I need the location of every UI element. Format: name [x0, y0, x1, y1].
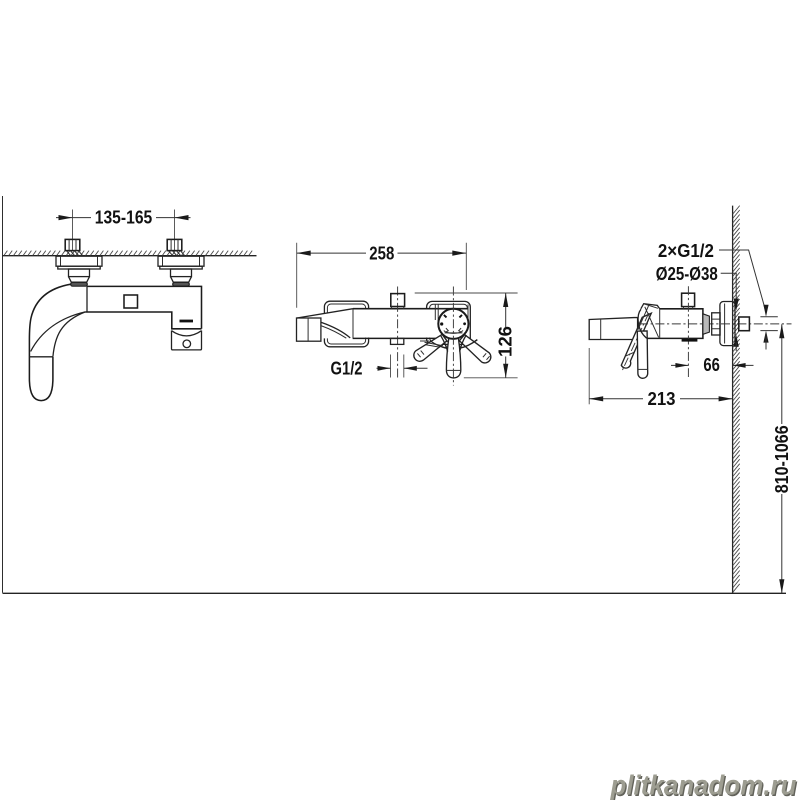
svg-text:135-165: 135-165 — [95, 207, 153, 228]
svg-text:258: 258 — [369, 242, 394, 263]
svg-text:810-1066: 810-1066 — [771, 425, 792, 493]
svg-text:Ø25-Ø38: Ø25-Ø38 — [656, 263, 718, 284]
svg-text:plitkanadom.ru: plitkanadom.ru — [610, 770, 797, 800]
svg-text:66: 66 — [703, 354, 720, 375]
svg-text:2×G1/2: 2×G1/2 — [658, 240, 714, 261]
svg-text:G1/2: G1/2 — [331, 357, 363, 378]
svg-text:126: 126 — [495, 326, 516, 357]
svg-text:213: 213 — [648, 388, 676, 409]
